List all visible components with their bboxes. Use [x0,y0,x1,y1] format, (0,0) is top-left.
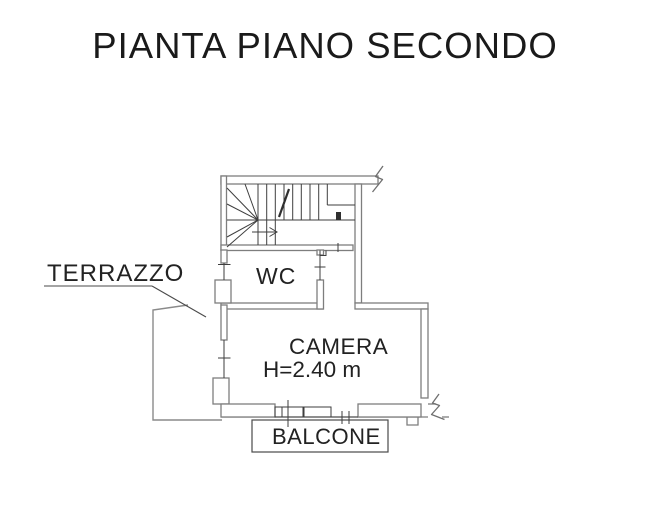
floor-plan-page: PIANTA PIANO SECONDO [0,0,650,518]
wall-left-seg1 [221,250,227,263]
wall-notch [407,417,418,425]
wall-wc-bottom [221,303,323,309]
terrazzo-label: TERRAZZO [47,260,184,287]
break-symbol-bottom-icon [432,394,445,420]
wall-left-seg2 [221,305,227,340]
camera-label: CAMERA [289,334,388,359]
wall-left-upper [221,176,227,250]
wall-stair-bottom [221,245,353,251]
window-left-1 [218,263,231,280]
wall-bottom-right [358,404,421,417]
window-left-2 [218,340,231,378]
balcone-label: BALCONE [272,424,381,449]
pilaster-2 [213,378,229,404]
wall-top [221,176,378,184]
window-bottom [275,400,331,427]
wall-right-upper [355,184,362,303]
wall-wc-right [317,280,324,309]
wall-bottom-left [221,404,275,417]
stair-direction-arrow [252,228,277,237]
wc-label: WC [256,263,296,289]
terrace-outline [153,305,222,420]
break-symbols [373,166,445,420]
balcony-door [331,411,358,424]
camera-height-label: H=2.40 m [263,357,361,382]
wall-right-lower [421,309,428,398]
walls [213,176,449,425]
page-title: PIANTA PIANO SECONDO [92,25,558,66]
pilaster-1 [215,280,231,303]
stair-winders [227,184,258,247]
wc-door [315,255,326,280]
wall-step [355,303,428,309]
floor-plan-drawing: PIANTA PIANO SECONDO [0,0,650,518]
terrazzo-leader [44,286,206,317]
stair-newel-mark [336,212,341,220]
stair-treads-upper [258,184,327,220]
